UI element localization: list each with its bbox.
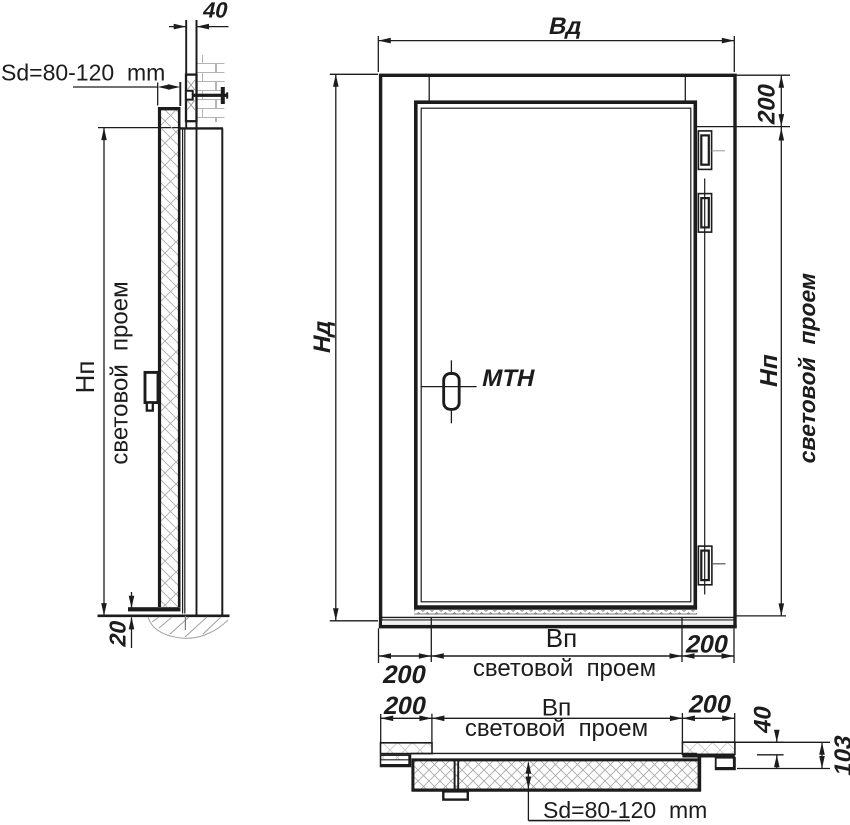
svg-text:200: 200 xyxy=(686,691,734,719)
svg-text:световой проем: световой проем xyxy=(107,281,134,464)
svg-text:103: 103 xyxy=(830,733,850,779)
svg-text:Нп: Нп xyxy=(756,351,783,389)
svg-text:световой проем: световой проем xyxy=(465,715,648,742)
svg-text:200: 200 xyxy=(754,81,781,127)
svg-text:Sd=80-120 mm: Sd=80-120 mm xyxy=(1,60,165,86)
svg-text:световой проем: световой проем xyxy=(794,270,820,466)
svg-text:Вп: Вп xyxy=(546,623,577,653)
svg-text:20: 20 xyxy=(105,618,131,649)
svg-text:40: 40 xyxy=(750,703,777,735)
svg-text:Нд: Нд xyxy=(309,317,336,355)
svg-text:200: 200 xyxy=(380,661,428,689)
svg-text:Вд: Вд xyxy=(546,13,584,40)
svg-text:Нп: Нп xyxy=(70,361,100,394)
svg-text:200: 200 xyxy=(683,631,731,659)
svg-text:световой проем: световой проем xyxy=(473,655,656,682)
svg-text:200: 200 xyxy=(381,692,429,720)
svg-text:Sd=80-120 mm: Sd=80-120 mm xyxy=(543,797,707,823)
svg-text:МТН: МТН xyxy=(480,365,538,392)
